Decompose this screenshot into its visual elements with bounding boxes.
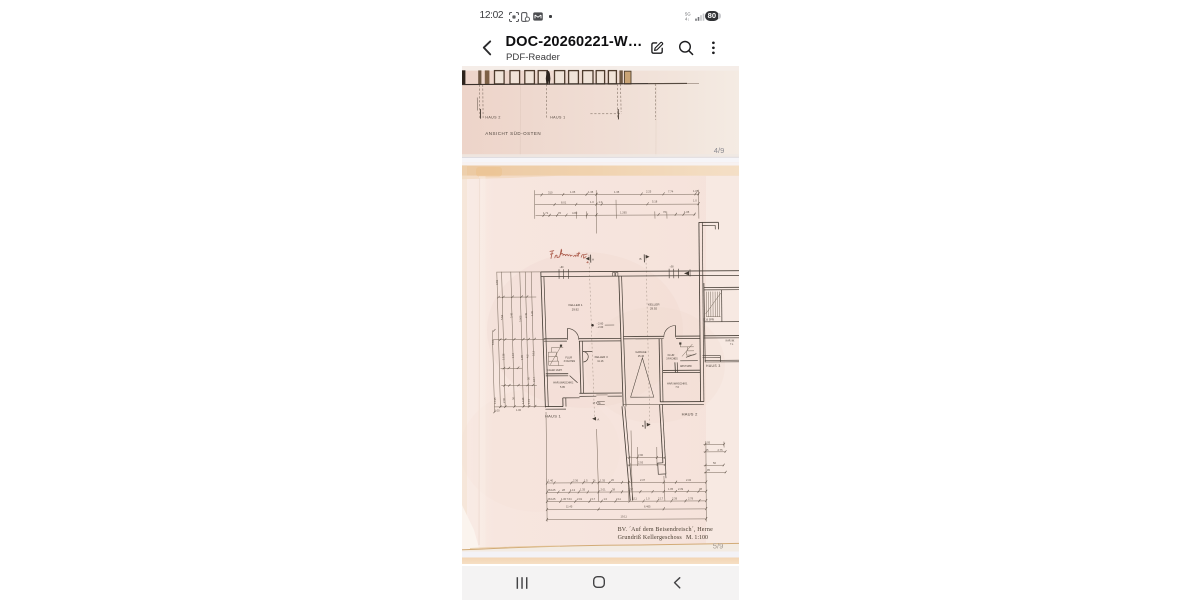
svg-text:4.80: 4.80 (572, 211, 578, 215)
svg-text:HAUS 1: HAUS 1 (545, 413, 561, 418)
svg-text:HAUS 1: HAUS 1 (550, 116, 565, 120)
svg-text:1.5: 1.5 (584, 478, 588, 482)
svg-text:1.135: 1.135 (493, 397, 497, 404)
svg-text:BV. ´Auf dem Beisendreisch´, H: BV. ´Auf dem Beisendreisch´, Herne (618, 526, 713, 533)
svg-text:GARAGE: GARAGE (635, 350, 646, 354)
svg-text:ABST.SPRI: ABST.SPRI (680, 365, 692, 368)
svg-text:2.01: 2.01 (577, 497, 583, 501)
svg-text:1.135: 1.135 (521, 397, 525, 404)
svg-text:B: B (640, 257, 642, 261)
svg-text:HAR./WASCHKÜ.: HAR./WASCHKÜ. (667, 381, 688, 385)
svg-text:29.92: 29.92 (650, 307, 657, 311)
svg-text:2.90: 2.90 (638, 453, 644, 457)
svg-text:1.0: 1.0 (599, 200, 603, 204)
svg-text:1.05: 1.05 (668, 487, 674, 491)
svg-text:1.0: 1.0 (693, 199, 697, 203)
svg-text:3.63: 3.63 (495, 279, 499, 285)
svg-text:% ELEK.VERT.: % ELEK.VERT. (547, 370, 563, 372)
svg-text:8.01: 8.01 (561, 200, 567, 204)
svg-text:2.78: 2.78 (688, 496, 694, 500)
svg-text:2.00: 2.00 (502, 397, 506, 403)
svg-text:KELLER 3: KELLER 3 (595, 355, 609, 359)
svg-text:ANSICHT SÜD-OSTEN: ANSICHT SÜD-OSTEN (485, 130, 541, 136)
svg-text:2.17: 2.17 (658, 497, 664, 501)
svg-text:28.125: 28.125 (548, 488, 556, 492)
svg-text:1.10: 1.10 (511, 352, 515, 358)
svg-text:1.30: 1.30 (530, 310, 534, 316)
svg-text:7.6: 7.6 (675, 386, 679, 389)
svg-text:2.75: 2.75 (718, 448, 724, 452)
svg-text:5.18: 5.18 (652, 200, 658, 204)
svg-text:2.01: 2.01 (601, 488, 607, 492)
svg-text:2.37: 2.37 (628, 488, 634, 492)
svg-text:28.125: 28.125 (548, 497, 556, 501)
svg-text:15.46: 15.46 (638, 355, 645, 358)
svg-text:5.16 SPRI: 5.16 SPRI (704, 320, 715, 322)
svg-text:FLUR: FLUR (668, 353, 675, 357)
svg-text:Grundriß Kellergeschoss: Grundriß Kellergeschoss (618, 534, 683, 541)
svg-text:1.05: 1.05 (693, 189, 699, 193)
svg-text:1.13: 1.13 (570, 488, 576, 492)
svg-text:3 FACHES: 3 FACHES (666, 357, 678, 360)
svg-text:1.35: 1.35 (600, 478, 606, 482)
svg-text:2.36: 2.36 (573, 478, 579, 482)
svg-text:3.49: 3.49 (510, 312, 514, 318)
svg-text:29.92: 29.92 (572, 307, 579, 311)
svg-text:7.74: 7.74 (668, 190, 674, 194)
svg-text:1.0: 1.0 (646, 497, 650, 501)
svg-text:2.25: 2.25 (646, 190, 652, 194)
svg-text:19.11: 19.11 (621, 515, 628, 519)
svg-text:1.05: 1.05 (570, 190, 576, 194)
svg-text:5.64: 5.64 (500, 314, 504, 320)
svg-text:3 FACHES: 3 FACHES (564, 360, 576, 363)
svg-text:1.40: 1.40 (548, 479, 554, 483)
svg-text:4.2: 4.2 (526, 354, 530, 358)
svg-text:HAUS 2: HAUS 2 (682, 412, 698, 417)
svg-text:1.35: 1.35 (580, 488, 586, 492)
svg-text:HAUS 3: HAUS 3 (706, 364, 721, 368)
svg-text:1.0: 1.0 (604, 497, 608, 501)
svg-text:4/9: 4/9 (714, 146, 725, 155)
svg-text:6.465: 6.465 (644, 504, 651, 508)
svg-text:2.11: 2.11 (632, 497, 637, 501)
svg-text:B: B (642, 424, 644, 428)
svg-text:3.17: 3.17 (532, 376, 536, 382)
svg-text:2.37: 2.37 (640, 478, 646, 482)
svg-text:1.05: 1.05 (705, 440, 711, 444)
svg-text:1.35: 1.35 (588, 190, 594, 194)
svg-text:2.17: 2.17 (590, 497, 596, 501)
svg-text:1.00: 1.00 (495, 409, 501, 413)
svg-text:2.39: 2.39 (672, 497, 678, 501)
svg-text:2.49: 2.49 (524, 312, 528, 318)
svg-text:- 2.00: - 2.00 (597, 325, 604, 329)
svg-text:FLUR: FLUR (565, 355, 572, 359)
svg-text:5/9: 5/9 (713, 542, 724, 551)
svg-text:3.005: 3.005 (519, 315, 523, 322)
svg-text:11.16: 11.16 (597, 359, 604, 363)
svg-text:5.95: 5.95 (560, 386, 565, 389)
svg-text:1.35: 1.35 (614, 190, 620, 194)
svg-text:2.93: 2.93 (638, 460, 644, 464)
svg-text:3.12: 3.12 (532, 350, 536, 356)
svg-text:1.71: 1.71 (543, 211, 549, 215)
svg-text:2.32: 2.32 (686, 478, 692, 482)
svg-text:A: A (592, 257, 594, 261)
svg-text:4↓: 4↓ (685, 17, 689, 21)
svg-text:7.64: 7.64 (567, 497, 573, 501)
svg-text:1.05: 1.05 (684, 210, 690, 214)
svg-text:1.00: 1.00 (516, 408, 522, 412)
svg-text:1.15: 1.15 (527, 398, 531, 404)
svg-text:M. 1:100: M. 1:100 (686, 535, 708, 541)
svg-text:2.39: 2.39 (678, 487, 684, 491)
svg-text:KAR./W.: KAR./W. (726, 339, 735, 342)
svg-text:1.265: 1.265 (620, 210, 627, 214)
svg-text:11.45: 11.45 (566, 505, 573, 509)
svg-text:1.85: 1.85 (520, 354, 524, 360)
svg-text:2.11: 2.11 (616, 497, 621, 501)
svg-text:8.84: 8.84 (491, 339, 495, 345)
svg-text:310: 310 (548, 191, 553, 195)
svg-text:- 2.60: - 2.60 (597, 321, 604, 325)
svg-text:76: 76 (663, 210, 666, 214)
svg-text:76: 76 (558, 211, 561, 215)
svg-text:HAR./WASCHKÜ.: HAR./WASCHKÜ. (553, 380, 574, 384)
svg-text:A: A (597, 418, 599, 422)
svg-text:1.0: 1.0 (590, 200, 594, 204)
svg-text:HAUS 2: HAUS 2 (485, 116, 500, 120)
svg-text:1.135: 1.135 (502, 353, 506, 360)
